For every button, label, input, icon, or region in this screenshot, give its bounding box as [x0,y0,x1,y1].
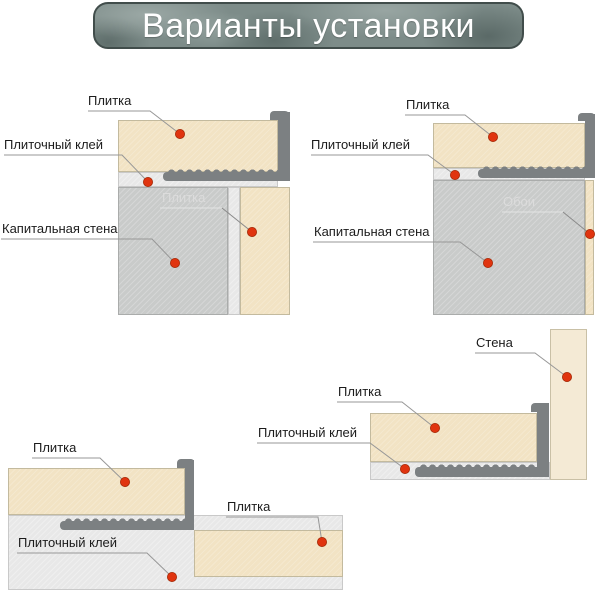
label-wall: Капитальная стена [2,222,118,236]
page: Варианты установки [0,0,600,593]
leader-line [17,553,172,577]
marker-dot [317,537,326,546]
label-tile: Плитка [33,441,76,455]
marker-dot [170,258,179,267]
leader-line [222,208,252,232]
leader-line [226,517,322,542]
label-tile: Плитка [406,98,449,112]
marker-dot [488,132,497,141]
marker-dot [585,229,594,238]
marker-dot [450,170,459,179]
label-tile: Плитка [227,500,270,514]
leader-line [1,239,175,263]
leader-line [563,212,590,234]
annotation-lines [0,0,600,593]
label-wall: Капитальная стена [314,225,430,239]
marker-dot [143,177,152,186]
label-tile: Плитка [338,385,381,399]
leader-line [4,155,148,182]
label-tile: Плитка [88,94,131,108]
label-adhesive: Плиточный клей [258,426,357,440]
leader-line [311,155,455,175]
label-wall: Стена [476,336,513,350]
marker-dot [483,258,492,267]
marker-dot [430,423,439,432]
leader-line [32,458,125,482]
marker-dot [247,227,256,236]
marker-dot [175,129,184,138]
leader-line [257,443,405,469]
label-wallpaper: Обои [503,195,535,209]
label-adhesive: Плиточный клей [18,536,117,550]
marker-dot [562,372,571,381]
label-tile-side: Плитка [162,191,205,205]
label-adhesive: Плиточный клей [4,138,103,152]
leader-line [405,115,493,137]
marker-dot [167,572,176,581]
label-adhesive: Плиточный клей [311,138,410,152]
leader-line [475,353,567,377]
marker-dot [120,477,129,486]
leader-line [88,111,180,134]
marker-dot [400,464,409,473]
leader-line [313,242,488,263]
